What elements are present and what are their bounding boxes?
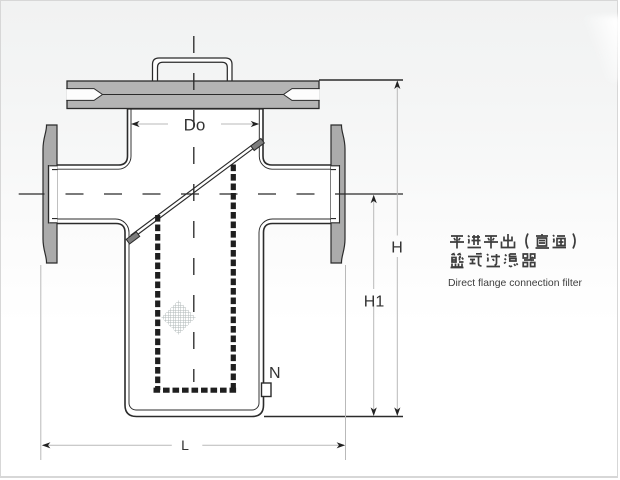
- svg-text:H1: H1: [364, 294, 385, 311]
- svg-text:H: H: [391, 240, 403, 257]
- svg-text:N: N: [269, 365, 281, 382]
- svg-text:Direct flange connection filte: Direct flange connection filter: [448, 278, 583, 289]
- svg-text:L: L: [181, 437, 189, 453]
- svg-text:Do: Do: [184, 116, 206, 135]
